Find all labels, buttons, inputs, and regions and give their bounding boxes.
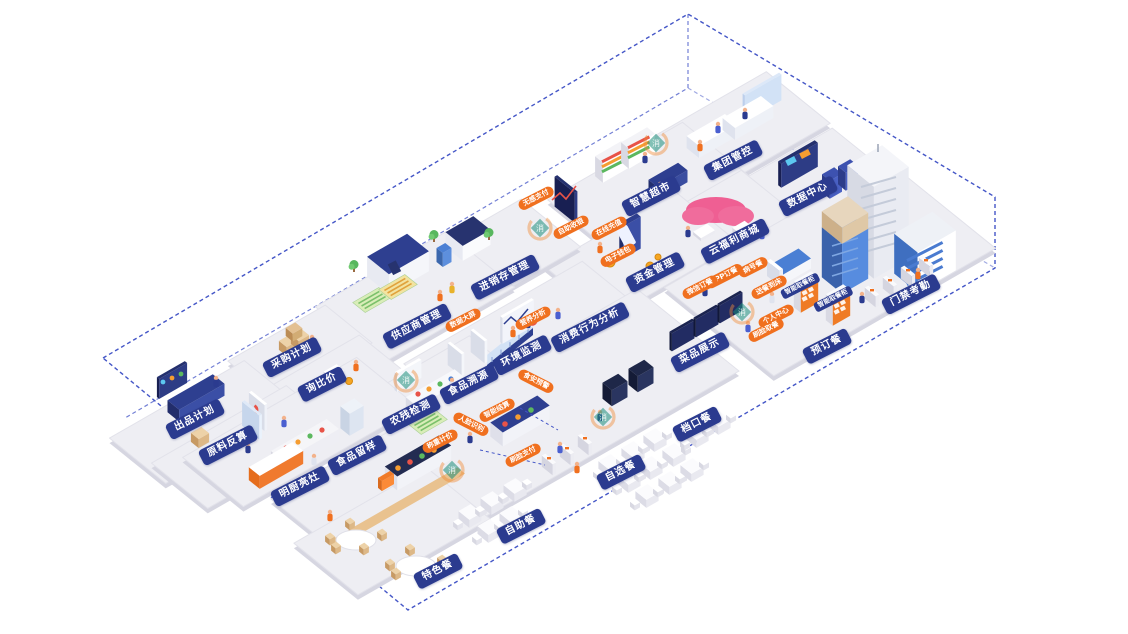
watermark-logo: 消 (536, 223, 544, 233)
isometric-scene: 消消消消消消 (0, 0, 1128, 634)
food-dish (437, 381, 442, 386)
person (468, 432, 472, 436)
person (697, 144, 702, 151)
watermark-logo: 消 (652, 138, 660, 148)
person (213, 380, 218, 387)
person (575, 462, 579, 466)
person (716, 122, 720, 126)
food-dish (307, 433, 312, 438)
cloud-shape (682, 207, 714, 225)
data-wall-screen (778, 161, 781, 188)
control-screen (157, 377, 159, 399)
watermark-logo: 消 (448, 465, 456, 475)
person (574, 466, 579, 473)
person (282, 416, 286, 420)
person (510, 330, 515, 337)
person (558, 442, 562, 446)
food-tray (407, 459, 413, 465)
turnstile-gate (583, 437, 587, 439)
person (449, 286, 454, 293)
control-screen-dots (161, 380, 166, 385)
smart-canteen-isometric-map: 消消消消消消 出品计划 原料反算 采购计划 询比价 供应商管理 进销存管理 智慧… (0, 0, 1128, 634)
monitoring-board (500, 316, 502, 344)
turnstile-gate (565, 447, 569, 449)
person (328, 510, 332, 514)
person (353, 364, 358, 371)
tree (349, 264, 355, 270)
person (311, 458, 316, 465)
person (354, 360, 358, 364)
turnstile-gate (870, 289, 874, 291)
food-tray (528, 407, 534, 413)
person (915, 272, 920, 279)
person (214, 376, 218, 380)
turnstile-gate (906, 269, 910, 271)
person (555, 312, 560, 319)
person (556, 308, 560, 312)
person (281, 420, 286, 427)
food-tray (515, 414, 521, 420)
turnstile-gate (888, 279, 892, 281)
person (327, 514, 332, 521)
person (642, 156, 647, 163)
turnstile-gate (876, 294, 880, 307)
person (742, 112, 747, 119)
person (312, 454, 316, 458)
turnstile-gate (924, 259, 928, 261)
menu-screen (670, 332, 672, 352)
person (245, 446, 250, 453)
person (597, 246, 602, 253)
tree (429, 234, 435, 240)
food-dish (319, 427, 324, 432)
watermark-logo: 消 (738, 307, 746, 317)
food-tray (502, 421, 508, 427)
trace-screen (485, 340, 488, 364)
person (770, 292, 774, 296)
menu-screen (694, 318, 696, 338)
kitchen-glass (259, 414, 262, 440)
person (686, 226, 690, 230)
menu-screen (718, 304, 720, 324)
whiteboard (265, 404, 268, 432)
person (467, 436, 472, 443)
person (859, 296, 864, 303)
person (769, 296, 774, 303)
control-screen-dots (179, 372, 184, 377)
trace-screen (462, 353, 465, 377)
person (511, 326, 515, 330)
turnstile-gate (547, 457, 551, 459)
person (438, 290, 442, 294)
food-tray (419, 453, 425, 459)
turnstile-gate (571, 452, 575, 465)
watermark-logo: 消 (599, 412, 607, 422)
turnstile-gate (589, 442, 593, 455)
person (643, 152, 647, 156)
person (685, 230, 690, 237)
food-dish (426, 386, 431, 391)
control-screen-dots (170, 376, 175, 381)
person (743, 108, 747, 112)
round-table (336, 530, 376, 550)
person (437, 294, 442, 301)
watermark-logo: 消 (402, 375, 410, 385)
person (916, 268, 920, 272)
turnstile-gate (553, 462, 557, 475)
food-tray (395, 465, 401, 471)
person (715, 126, 720, 133)
person (860, 292, 864, 296)
person (598, 242, 602, 246)
person (450, 282, 454, 286)
cloud-shape (718, 206, 754, 226)
food-dish (295, 439, 300, 444)
person (698, 140, 702, 144)
food-dish (415, 391, 420, 396)
tree (484, 232, 490, 238)
person (557, 446, 562, 453)
